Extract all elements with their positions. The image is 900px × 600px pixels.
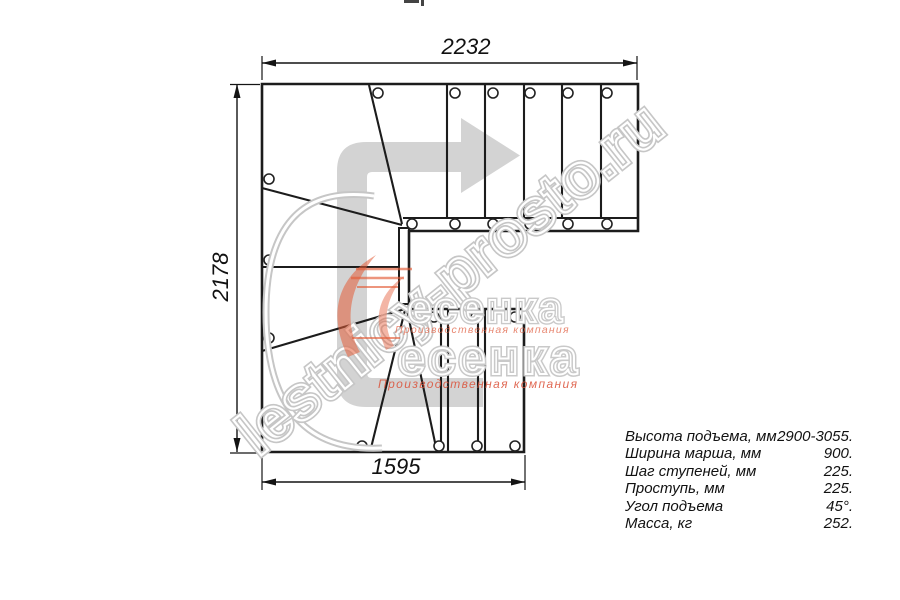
spec-value: 225. xyxy=(824,480,853,497)
spec-row-tread: Проступь, мм 225. xyxy=(625,480,853,497)
spec-row-mass: Масса, кг 252. xyxy=(625,515,853,532)
logo-subtitle-row2: Производственная компания xyxy=(378,377,578,391)
spec-label: Ширина марша, мм xyxy=(625,445,761,462)
spec-row-height: Высота подъема, мм 2900-3055. xyxy=(625,428,853,445)
spec-label: Высота подъема, мм xyxy=(625,428,777,445)
dimension-bottom-label: 1595 xyxy=(336,456,456,478)
spec-row-flight-width: Ширина марша, мм 900. xyxy=(625,445,853,462)
spec-value: 225. xyxy=(824,463,853,480)
spec-value: 2900-3055. xyxy=(777,428,853,445)
spec-value: 252. xyxy=(824,515,853,532)
cropped-top-text-fragment xyxy=(404,0,424,6)
dimension-top-label: 2232 xyxy=(406,36,526,58)
spec-row-step-pitch: Шаг ступеней, мм 225. xyxy=(625,463,853,480)
staircase-drawing-page: lestnicy-prosto.ru lestnicy-prosto.ru ес… xyxy=(0,0,900,600)
spec-label: Шаг ступеней, мм xyxy=(625,463,756,480)
spec-table: Высота подъема, мм 2900-3055. Ширина мар… xyxy=(625,428,853,532)
spec-label: Проступь, мм xyxy=(625,480,725,497)
spec-label: Масса, кг xyxy=(625,515,692,532)
dimension-left-label: 2178 xyxy=(210,217,232,337)
spec-value: 45°. xyxy=(826,498,853,515)
spec-label: Угол подъема xyxy=(625,498,723,515)
spec-row-angle: Угол подъема 45°. xyxy=(625,498,853,515)
spec-value: 900. xyxy=(824,445,853,462)
logo-subtitle-row1: Производственная компания xyxy=(395,324,570,336)
